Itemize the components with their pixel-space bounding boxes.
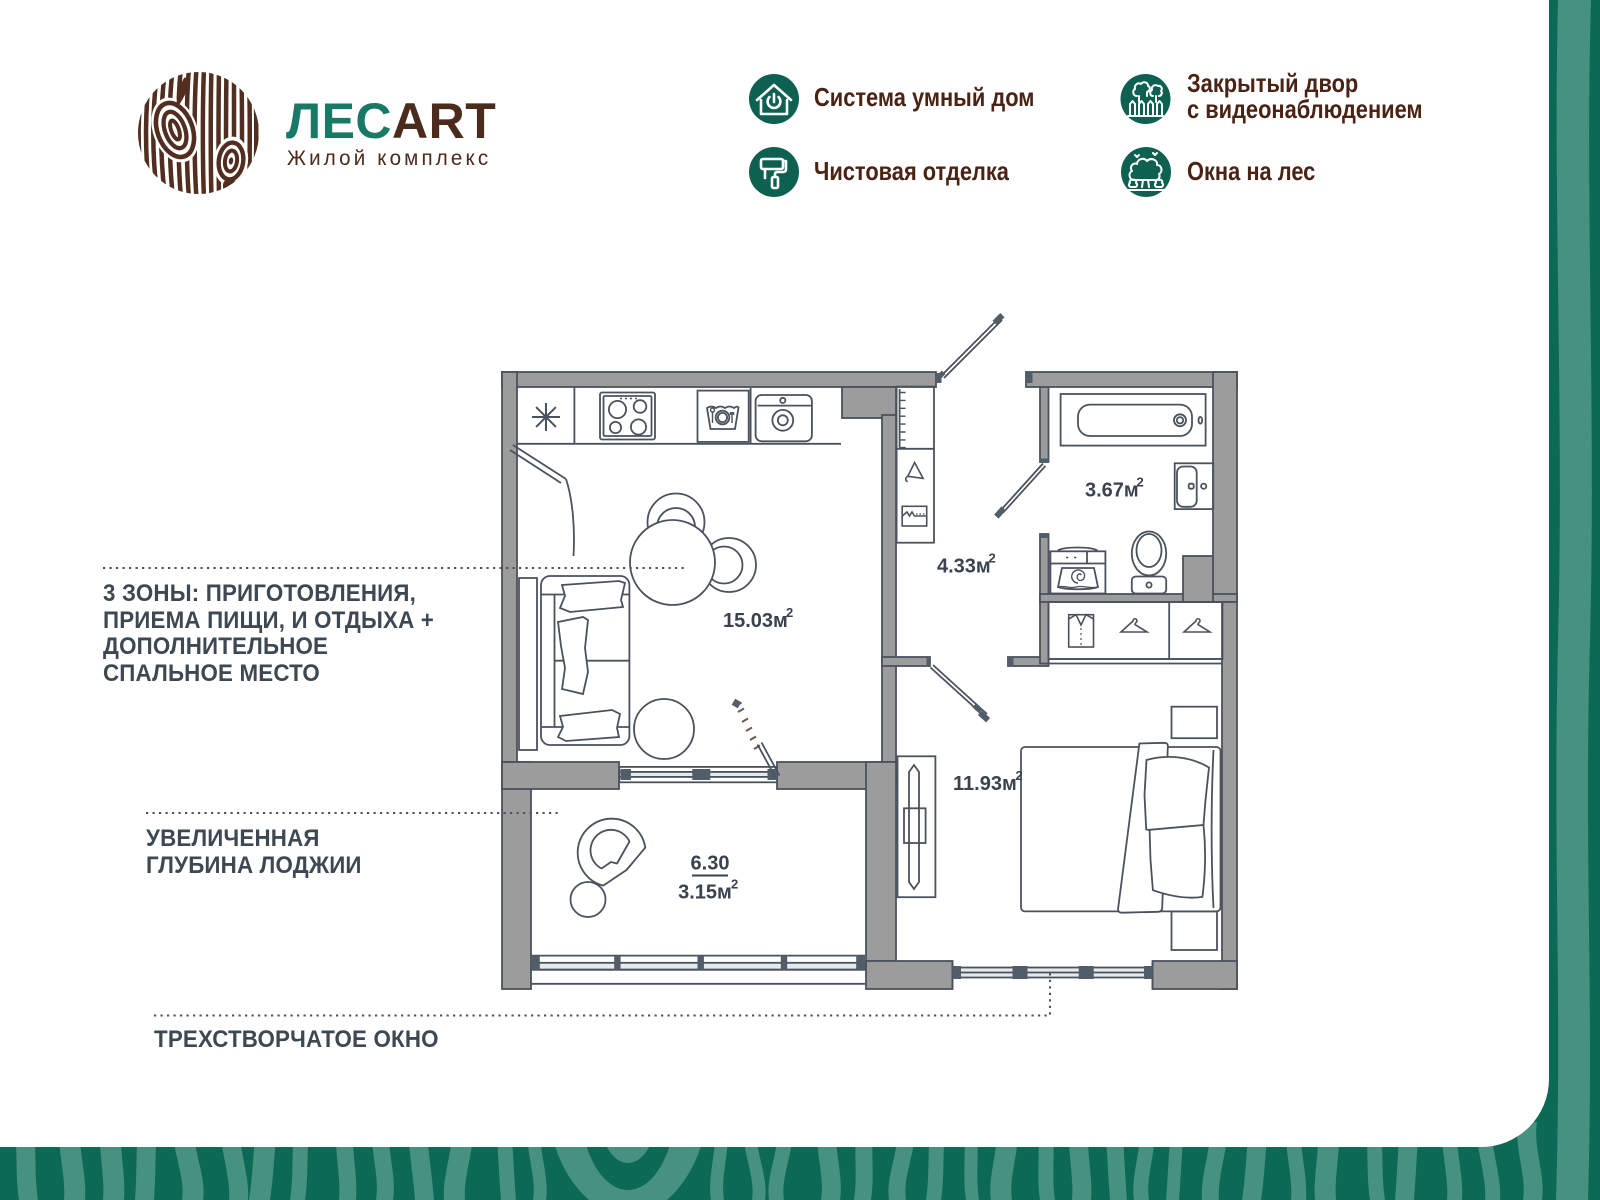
svg-text:2: 2	[731, 877, 738, 892]
svg-text:3.15м: 3.15м	[678, 882, 732, 904]
svg-text:11.93м: 11.93м	[953, 773, 1017, 795]
svg-text:3.67м: 3.67м	[1085, 480, 1139, 502]
svg-text:2: 2	[1137, 475, 1144, 490]
svg-text:4.33м: 4.33м	[937, 556, 991, 578]
svg-text:6.30: 6.30	[691, 853, 730, 875]
svg-text:2: 2	[786, 605, 793, 620]
svg-text:2: 2	[1016, 768, 1023, 783]
svg-text:2: 2	[989, 551, 996, 566]
svg-text:15.03м: 15.03м	[723, 610, 788, 632]
